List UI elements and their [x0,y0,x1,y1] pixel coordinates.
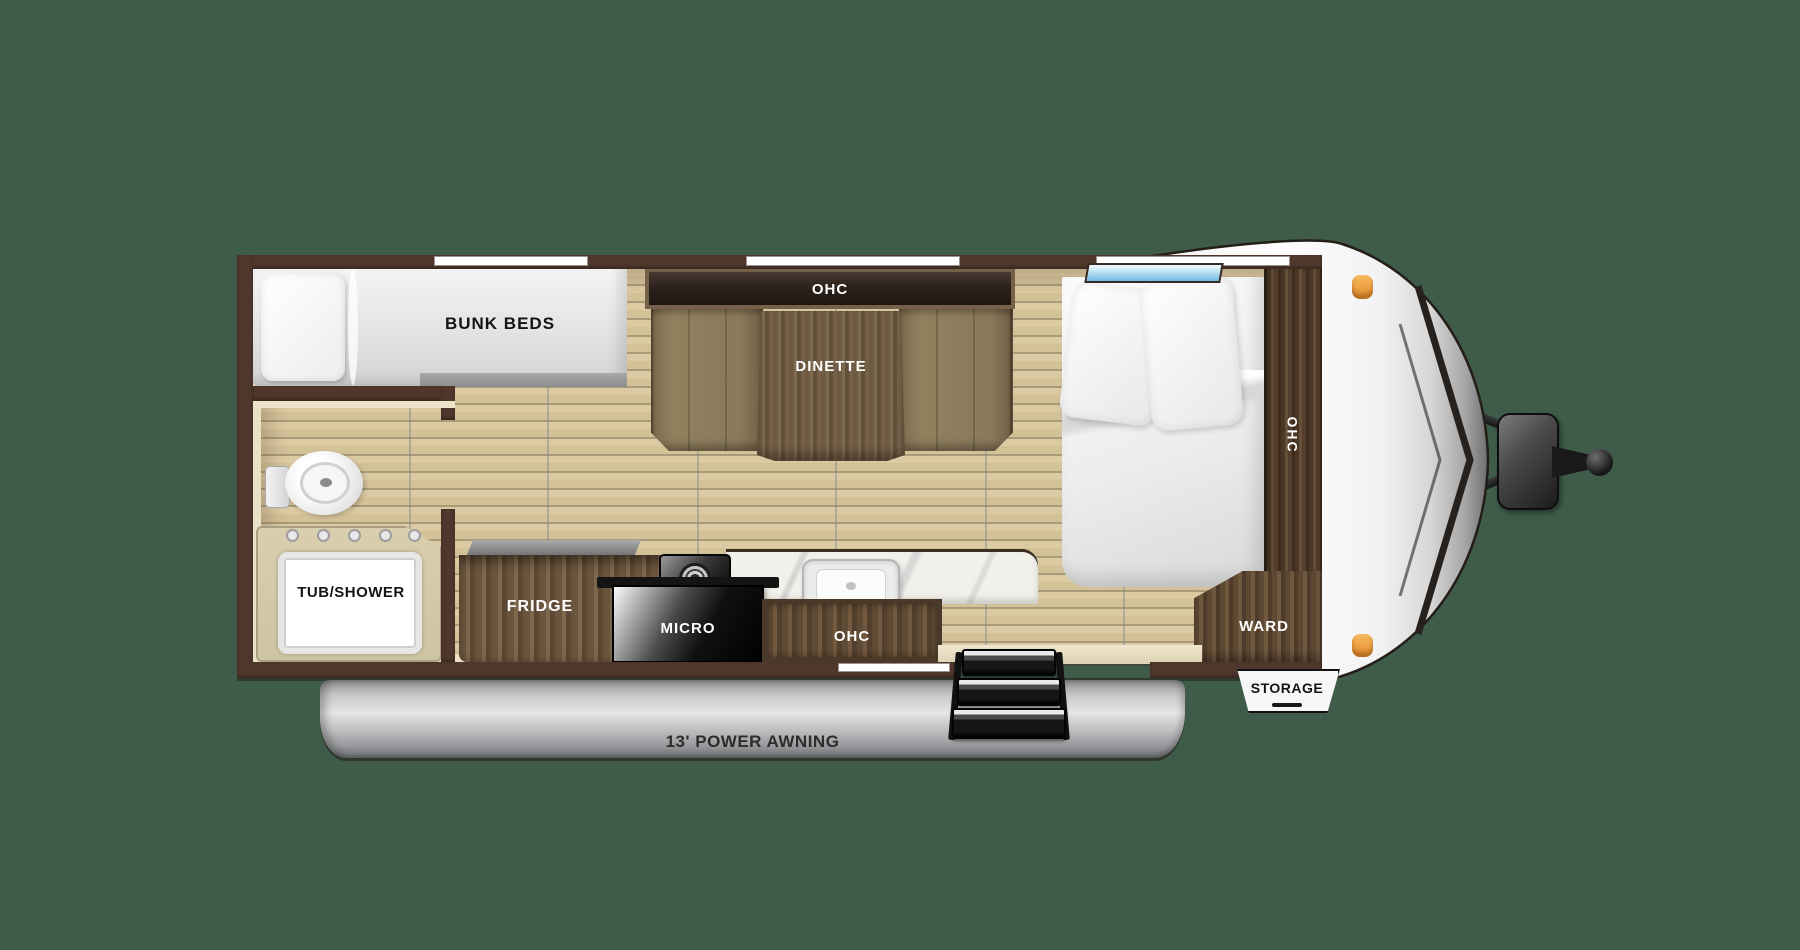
kitchen-ohc-label: OHC [762,628,942,645]
window-kitchen-rear [838,663,950,672]
sink-drain [846,582,856,590]
curtain-ring [379,529,392,542]
bunk-beds-label: BUNK BEDS [400,314,600,334]
wall-left [237,255,253,678]
rv-floor-plan: 13' POWER AWNING BUNK BEDS [0,0,1800,950]
dinette-label: DINETTE [757,358,905,375]
window-bunk [434,256,588,266]
curtain-ring [408,529,421,542]
dinette-bench-left [651,309,763,451]
hitch-ball [1586,449,1613,476]
tub-shower-label: TUB/SHOWER [286,584,416,601]
wall-bath-divider [441,509,455,662]
bunk-bed-pillow [261,273,345,381]
bedroom-ohc-label: OHC [1285,416,1301,453]
tub-shower-basin [278,552,422,654]
entry-steps [950,647,1068,742]
step-tread-2 [957,678,1061,706]
microwave-label: MICRO [612,620,764,637]
storage-label: STORAGE [1234,680,1340,696]
fridge-label: FRIDGE [459,598,621,616]
bedroom-skylight-window [1084,263,1224,283]
curtain-ring [348,529,361,542]
curtain-ring [317,529,330,542]
step-tread-3 [952,708,1066,739]
toilet-drain [320,478,332,487]
dinette-ohc-label: OHC [649,281,1011,298]
dinette-overhead-cabinet: OHC [645,268,1015,309]
clearance-light-bottom [1352,634,1373,657]
window-dinette [746,256,960,266]
dinette-table [757,311,905,461]
bed-pillow-right [1140,274,1245,431]
bedroom-ohc-label-box: OHC [1264,400,1322,470]
bunk-bed-rail [420,373,627,387]
wardrobe-label: WARD [1200,618,1328,635]
bunk-sheet-fold [348,268,358,385]
dinette-bench-right [899,309,1013,451]
curtain-ring [286,529,299,542]
clearance-light-top [1352,275,1373,299]
wall-bunk-divider [253,386,455,401]
propane-tank-cover [1497,413,1559,510]
wall-lining-bath [253,401,455,408]
step-tread-1 [962,649,1056,676]
storage-door-handle [1272,703,1302,707]
